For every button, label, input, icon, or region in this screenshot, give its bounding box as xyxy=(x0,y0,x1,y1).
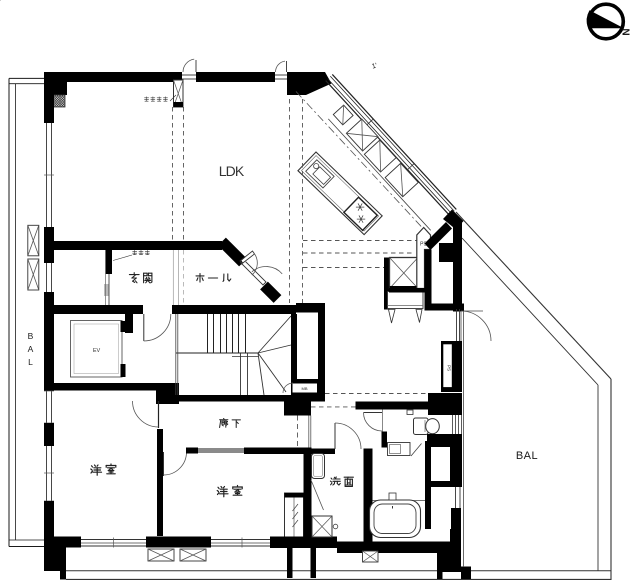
svg-text:N: N xyxy=(622,28,633,35)
svg-text:BAL: BAL xyxy=(516,450,538,462)
svg-text:A: A xyxy=(28,344,34,354)
svg-text:MB: MB xyxy=(302,386,308,391)
svg-text:LDK: LDK xyxy=(219,163,245,179)
svg-text:L: L xyxy=(28,357,33,367)
svg-text:EV: EV xyxy=(93,348,101,354)
svg-text:PS: PS xyxy=(447,365,452,371)
svg-text:B: B xyxy=(28,331,34,341)
